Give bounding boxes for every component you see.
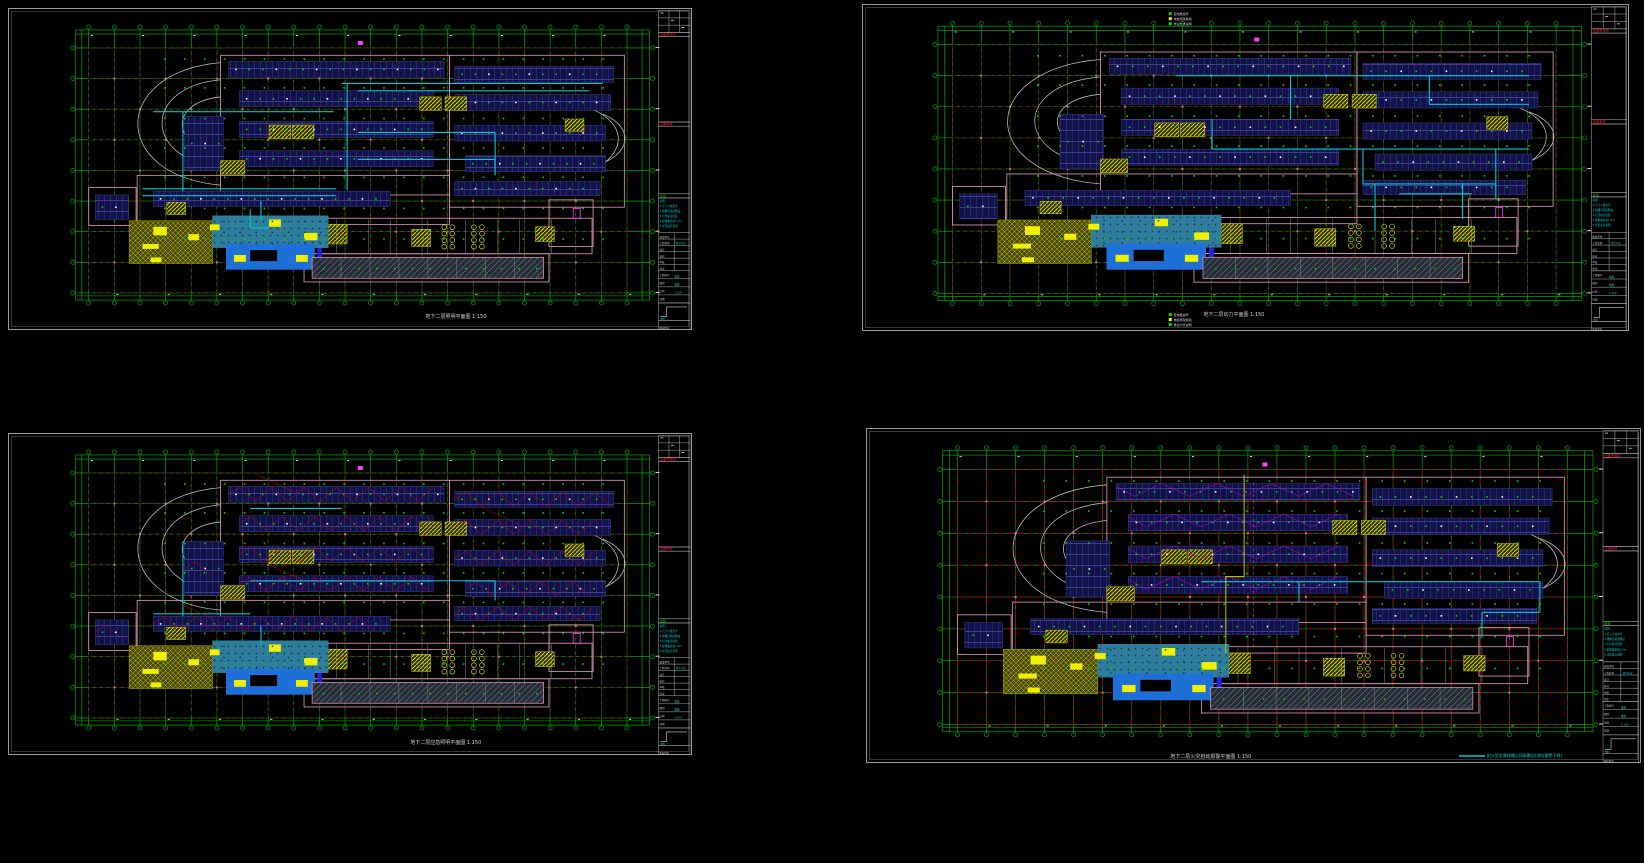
fan-units	[442, 225, 484, 249]
svg-text:4.配电箱底边1.5m: 4.配电箱底边1.5m	[1593, 218, 1616, 222]
svg-text:电施: 电施	[674, 708, 680, 712]
svg-text:2.线槽沿梁底敷设: 2.线槽沿梁底敷设	[660, 209, 681, 213]
svg-text:建设单位: 建设单位	[1592, 234, 1603, 238]
svg-text:日期: 日期	[1592, 297, 1598, 301]
svg-text:会签: 会签	[1593, 192, 1599, 197]
pool-area	[129, 641, 328, 695]
svg-text:注册师章: 注册师章	[1605, 546, 1619, 551]
svg-text:配电箱编号: 配电箱编号	[1174, 312, 1189, 317]
svg-text:3.灯具吸顶安装: 3.灯具吸顶安装	[660, 214, 678, 218]
title-block: 出图专用章注册师章会签说明:1.尺寸以毫米计2.线槽沿梁底敷设3.灯具吸顶安装4…	[1603, 431, 1639, 763]
svg-text:版权所有: 版权所有	[659, 751, 669, 755]
svg-text:审核: 审核	[1592, 260, 1598, 264]
svg-text:校对: 校对	[659, 679, 665, 683]
svg-text:地下车库: 地下车库	[1623, 671, 1634, 675]
svg-text:工程名称: 工程名称	[659, 241, 670, 245]
fan-units	[442, 650, 484, 674]
svg-text:说明:: 说明:	[1593, 198, 1599, 202]
svg-text:审定: 审定	[1592, 267, 1598, 271]
sheet-b2-power-plan[interactable]: 配电箱编号电缆桥架规格敷设方式说明配电箱编号电缆桥架规格敷设方式说明出图专用章注…	[862, 4, 1629, 331]
svg-text:设计: 设计	[1592, 247, 1598, 251]
svg-text:图标: 图标	[660, 317, 665, 321]
svg-text:图标: 图标	[1605, 749, 1610, 753]
svg-text:会签: 会签	[660, 193, 666, 198]
cad-model-space: 出图专用章注册师章会签说明:1.尺寸以毫米计2.线槽沿梁底敷设3.灯具吸顶安装4…	[0, 0, 1644, 863]
svg-text:说明:: 说明:	[660, 624, 666, 628]
svg-text:版权所有: 版权所有	[1604, 759, 1614, 763]
svg-text:图标: 图标	[660, 742, 665, 746]
top-marker	[358, 41, 363, 45]
svg-text:会签: 会签	[660, 618, 666, 623]
svg-text:建设单位: 建设单位	[659, 235, 670, 239]
svg-text:图别: 图别	[659, 706, 665, 710]
svg-text:注册师章: 注册师章	[660, 121, 674, 126]
svg-text:地下车库: 地下车库	[1611, 241, 1622, 245]
svg-text:电施: 电施	[1621, 714, 1627, 718]
title-block: 出图专用章注册师章会签说明:1.尺寸以毫米计2.线槽沿梁底敷设3.灯具吸顶安装4…	[658, 11, 689, 330]
svg-text:2.线槽沿梁底敷设: 2.线槽沿梁底敷设	[1593, 208, 1614, 212]
svg-text:电缆桥架规格: 电缆桥架规格	[1174, 16, 1192, 21]
fan-units	[1348, 224, 1394, 248]
svg-text:校对: 校对	[659, 254, 665, 258]
svg-text:说明:: 说明:	[1604, 627, 1610, 631]
top-marker	[1254, 38, 1259, 42]
svg-text:敷设方式说明: 敷设方式说明	[1174, 322, 1192, 327]
svg-text:审核: 审核	[659, 685, 665, 689]
svg-text:4.配电箱底边1.5m: 4.配电箱底边1.5m	[1604, 647, 1627, 651]
svg-text:1.尺寸以毫米计: 1.尺寸以毫米计	[660, 204, 678, 208]
sheet-drawing: 出图专用章注册师章会签说明:1.尺寸以毫米计2.线槽沿梁底敷设3.灯具吸顶安装4…	[8, 433, 692, 755]
svg-text:工程编号: 工程编号	[659, 698, 670, 702]
svg-text:5.详见设计说明: 5.详见设计说明	[660, 649, 678, 653]
top-marker	[1262, 463, 1267, 467]
svg-text:敷设方式说明: 敷设方式说明	[1174, 21, 1192, 26]
svg-text:图别: 图别	[1592, 281, 1598, 285]
svg-text:地下车库: 地下车库	[676, 241, 687, 245]
svg-text:比例: 比例	[659, 289, 665, 293]
parking-bands	[960, 58, 1541, 219]
svg-text:审定: 审定	[1604, 697, 1610, 701]
dock-area	[312, 257, 543, 278]
svg-text:配电箱编号: 配电箱编号	[1174, 11, 1189, 16]
dock-area	[1203, 257, 1463, 278]
svg-text:1.尺寸以毫米计: 1.尺寸以毫米计	[1593, 203, 1611, 207]
dock-area	[1211, 688, 1473, 710]
legend-table: 配电箱编号电缆桥架规格敷设方式说明	[1169, 312, 1192, 327]
sheet-caption: 地下二层动力平面图 1:150	[1203, 313, 1264, 318]
pool-area	[129, 216, 328, 270]
svg-text:注册师章: 注册师章	[1593, 119, 1607, 124]
svg-text:工程编号: 工程编号	[1592, 273, 1603, 277]
sheet-caption: 地下二层应急照明平面图 1:150	[410, 741, 481, 746]
svg-text:版权所有: 版权所有	[659, 326, 669, 330]
svg-text:2.线槽沿梁底敷设: 2.线槽沿梁底敷设	[1604, 637, 1625, 641]
svg-text:3.灯具吸顶安装: 3.灯具吸顶安装	[1593, 213, 1611, 217]
svg-text:电施: 电施	[1609, 283, 1615, 287]
svg-text:电施: 电施	[674, 275, 680, 279]
svg-text:设计: 设计	[659, 248, 665, 252]
svg-text:出图专用章: 出图专用章	[660, 457, 677, 462]
svg-text:1.尺寸以毫米计: 1.尺寸以毫米计	[660, 629, 678, 633]
sheet-b2-fire-alarm-plan[interactable]: 出图专用章注册师章会签说明:1.尺寸以毫米计2.线槽沿梁底敷设3.灯具吸顶安装4…	[866, 428, 1641, 763]
svg-text:图别: 图别	[1604, 712, 1610, 716]
title-block: 出图专用章注册师章会签说明:1.尺寸以毫米计2.线槽沿梁底敷设3.灯具吸顶安装4…	[1591, 7, 1626, 331]
svg-text:电缆桥架规格: 电缆桥架规格	[1174, 317, 1192, 322]
parking-bands	[965, 484, 1552, 648]
svg-text:日期: 日期	[1604, 729, 1610, 733]
svg-text:1.尺寸以毫米计: 1.尺寸以毫米计	[1604, 632, 1622, 636]
svg-text:会签: 会签	[1605, 621, 1611, 626]
sheet-b2-emergency-lighting-plan[interactable]: 出图专用章注册师章会签说明:1.尺寸以毫米计2.线槽沿梁底敷设3.灯具吸顶安装4…	[8, 433, 692, 755]
svg-text:工程编号: 工程编号	[659, 273, 670, 277]
svg-text:1:150: 1:150	[1621, 722, 1629, 726]
svg-text:建设单位: 建设单位	[1604, 664, 1615, 668]
svg-text:4.配电箱底边1.5m: 4.配电箱底边1.5m	[660, 219, 683, 223]
svg-text:电施: 电施	[674, 700, 680, 704]
svg-text:比例: 比例	[1592, 289, 1598, 293]
sheet-caption: 地下二层火灾自动报警平面图 1:150	[1170, 755, 1251, 760]
sheet-drawing: 出图专用章注册师章会签说明:1.尺寸以毫米计2.线槽沿梁底敷设3.灯具吸顶安装4…	[8, 8, 692, 330]
sheet-drawing: 配电箱编号电缆桥架规格敷设方式说明配电箱编号电缆桥架规格敷设方式说明出图专用章注…	[862, 4, 1629, 331]
svg-text:审定: 审定	[659, 692, 665, 696]
svg-text:日期: 日期	[659, 722, 665, 726]
svg-text:日期: 日期	[659, 297, 665, 301]
sheet-caption: 地下二层照明平面图 1:150	[426, 315, 487, 320]
svg-text:图标: 图标	[1593, 318, 1598, 322]
svg-text:出图专用章: 出图专用章	[1605, 453, 1622, 458]
pool-area	[998, 215, 1221, 270]
legend-table: 配电箱编号电缆桥架规格敷设方式说明	[1169, 11, 1192, 26]
svg-text:1:150: 1:150	[674, 291, 682, 295]
pool-area	[1003, 644, 1229, 700]
svg-text:工程名称: 工程名称	[1604, 671, 1615, 675]
svg-text:图别: 图别	[659, 281, 665, 285]
sheet-drawing: 出图专用章注册师章会签说明:1.尺寸以毫米计2.线槽沿梁底敷设3.灯具吸顶安装4…	[866, 428, 1641, 763]
parking-bands	[95, 486, 613, 644]
svg-text:说明:: 说明:	[660, 199, 666, 203]
svg-text:3.灯具吸顶安装: 3.灯具吸顶安装	[1604, 642, 1622, 646]
dock-area	[312, 682, 543, 703]
top-marker	[358, 466, 363, 470]
svg-text:电施: 电施	[674, 283, 680, 287]
svg-text:工程名称: 工程名称	[1592, 241, 1603, 245]
svg-text:5.详见设计说明: 5.详见设计说明	[1604, 653, 1622, 657]
svg-text:工程编号: 工程编号	[1604, 704, 1615, 708]
svg-text:审核: 审核	[659, 260, 665, 264]
svg-text:出图专用章: 出图专用章	[1593, 28, 1610, 33]
svg-text:版权所有: 版权所有	[1592, 327, 1602, 331]
svg-text:地下车库: 地下车库	[676, 666, 687, 670]
sheet-b2-lighting-plan[interactable]: 出图专用章注册师章会签说明:1.尺寸以毫米计2.线槽沿梁底敷设3.灯具吸顶安装4…	[8, 8, 692, 330]
svg-text:审核: 审核	[1604, 691, 1610, 695]
svg-text:比例: 比例	[1604, 720, 1610, 724]
svg-text:1:150: 1:150	[674, 716, 682, 720]
svg-text:1:150: 1:150	[1609, 291, 1617, 295]
svg-text:电施: 电施	[1609, 275, 1615, 279]
svg-text:审定: 审定	[659, 267, 665, 271]
svg-text:电施: 电施	[1621, 706, 1627, 710]
svg-text:4.配电箱底边1.5m: 4.配电箱底边1.5m	[660, 644, 683, 648]
svg-text:建设单位: 建设单位	[659, 660, 670, 664]
title-block: 出图专用章注册师章会签说明:1.尺寸以毫米计2.线槽沿梁底敷设3.灯具吸顶安装4…	[658, 436, 689, 755]
cyan-line-swatch	[1459, 755, 1485, 757]
svg-text:设计: 设计	[659, 673, 665, 677]
svg-text:校对: 校对	[1604, 684, 1610, 688]
svg-text:校对: 校对	[1592, 254, 1598, 258]
svg-text:5.详见设计说明: 5.详见设计说明	[660, 224, 678, 228]
svg-text:设计: 设计	[1604, 677, 1610, 681]
svg-text:比例: 比例	[659, 714, 665, 718]
svg-text:3.灯具吸顶安装: 3.灯具吸顶安装	[660, 639, 678, 643]
tray-legend-note: 耐火型金属线槽沿顶板敷设(消防报警干线)	[1459, 754, 1562, 758]
svg-text:2.线槽沿梁底敷设: 2.线槽沿梁底敷设	[660, 634, 681, 638]
svg-text:出图专用章: 出图专用章	[660, 32, 677, 37]
svg-text:5.详见设计说明: 5.详见设计说明	[1593, 223, 1611, 227]
svg-text:工程名称: 工程名称	[659, 666, 670, 670]
svg-text:注册师章: 注册师章	[660, 546, 674, 551]
